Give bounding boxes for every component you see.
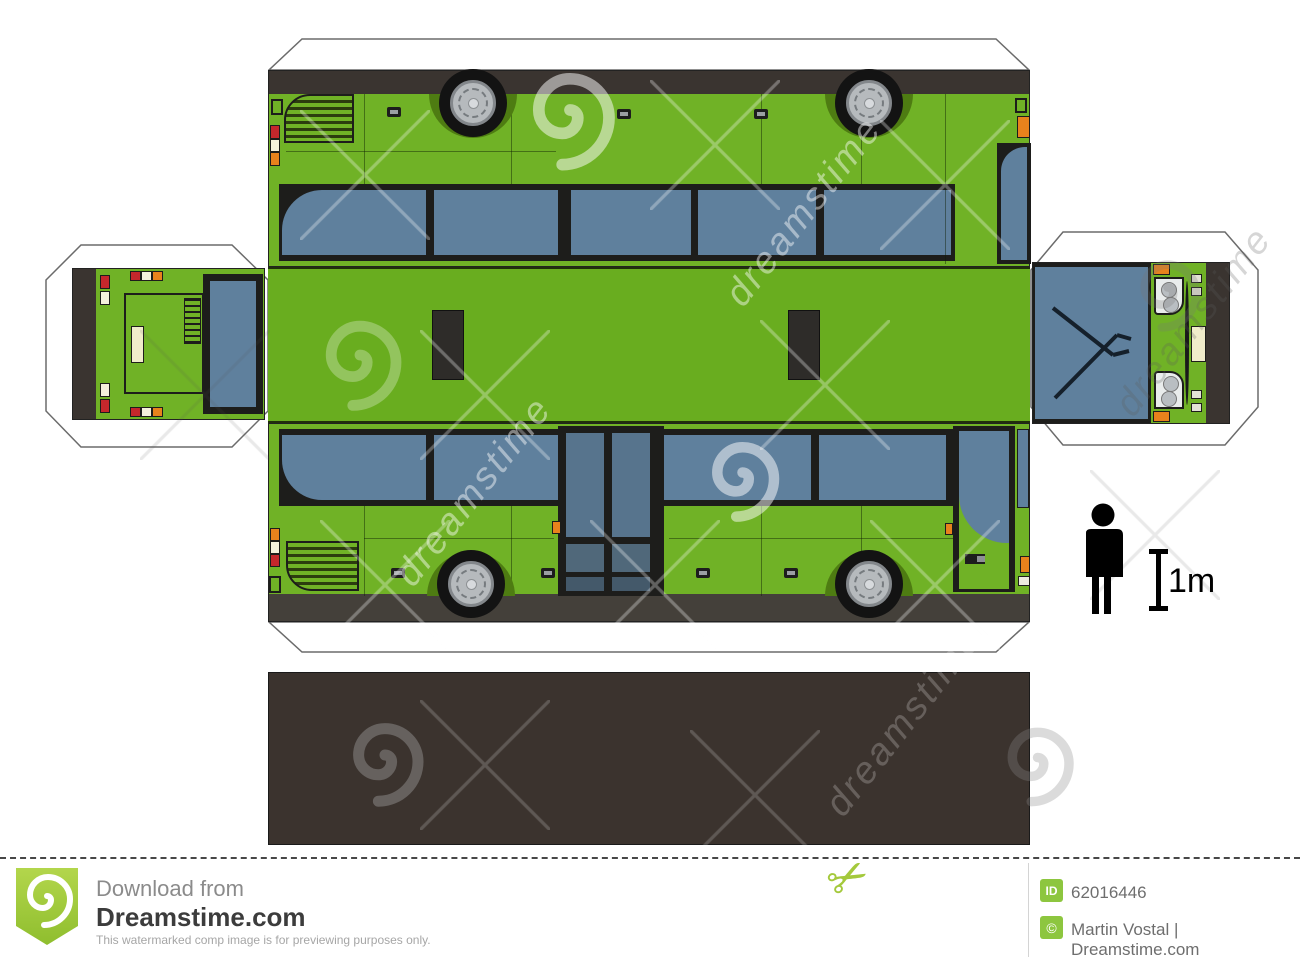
tail-light-red xyxy=(270,554,280,567)
scale-bar xyxy=(1156,549,1161,611)
door-handle xyxy=(977,556,985,562)
scissors-icon: ✂ xyxy=(817,844,879,912)
headlight xyxy=(1161,282,1177,298)
rear-lamp-outline xyxy=(269,576,281,593)
wiper-icon xyxy=(1033,263,1151,423)
side-marker-light xyxy=(387,107,401,117)
wheel xyxy=(835,69,903,137)
tail-cluster-white xyxy=(141,271,152,281)
door-panel xyxy=(612,544,650,572)
image-id: 62016446 xyxy=(1071,883,1147,903)
front-vent xyxy=(1191,390,1202,399)
front-indicator-orange xyxy=(1020,556,1030,573)
dreamstime-logo xyxy=(14,866,80,948)
panel-seam xyxy=(761,506,762,596)
side-marker-light xyxy=(541,568,555,578)
rear-window-frame xyxy=(203,274,263,414)
license-plate xyxy=(131,326,144,363)
windshield-frame xyxy=(1033,263,1151,423)
scale-bar xyxy=(1149,606,1168,611)
front-lamp-outline xyxy=(1015,98,1027,113)
side-marker-light xyxy=(617,109,631,119)
stock-image-preview: dreamstime dreamstime dreamstime dreamst… xyxy=(0,0,1300,957)
cut-line xyxy=(0,857,1300,859)
front-door xyxy=(953,426,1015,592)
wheel xyxy=(437,550,505,618)
bus-skirt-trim xyxy=(269,71,1029,94)
headlight xyxy=(1161,391,1177,407)
tail-cluster-orange xyxy=(152,271,163,281)
credit-text: Martin Vostal | Dreamstime.com xyxy=(1071,920,1300,957)
front-indicator-orange xyxy=(1153,411,1170,422)
panel-seam xyxy=(761,94,762,184)
roof-hatch xyxy=(788,310,820,380)
tail-light-white xyxy=(100,383,110,397)
bus-front-view xyxy=(1032,262,1230,424)
bus-side-top-panel xyxy=(268,70,1030,267)
headlight xyxy=(1163,297,1179,313)
headlight-cluster xyxy=(1154,277,1184,315)
engine-grille xyxy=(284,94,354,143)
side-marker-light xyxy=(391,568,405,578)
id-badge: ID xyxy=(1040,879,1063,902)
tail-light-red xyxy=(100,275,110,289)
bus-roof-panel xyxy=(268,267,1030,423)
disclaimer-text: This watermarked comp image is for previ… xyxy=(96,933,431,947)
door-panel xyxy=(566,544,604,572)
tail-cluster-red xyxy=(130,407,141,417)
bus-window xyxy=(282,190,426,255)
panel-seam xyxy=(286,151,556,152)
front-lamp-white xyxy=(1018,576,1030,586)
wheel xyxy=(835,550,903,618)
door-panel xyxy=(566,577,604,591)
side-marker-light xyxy=(696,568,710,578)
headlight xyxy=(1163,376,1179,392)
front-vent xyxy=(1191,274,1202,283)
panel-seam xyxy=(669,538,953,539)
bus-side-bottom-panel xyxy=(268,423,1030,622)
bus-rear-view xyxy=(72,268,265,420)
front-indicator-orange xyxy=(1017,116,1030,138)
bus-window xyxy=(664,435,811,500)
door-panel xyxy=(612,577,650,591)
front-bumper xyxy=(1206,263,1229,423)
windshield-glass xyxy=(1001,147,1027,260)
glue-flap-top xyxy=(268,38,1030,71)
front-vent xyxy=(1191,287,1202,296)
tail-light-red xyxy=(100,399,110,413)
side-marker-light xyxy=(784,568,798,578)
tail-cluster-orange xyxy=(152,407,163,417)
panel-seam xyxy=(364,538,554,539)
person-icon xyxy=(1083,503,1129,615)
copyright-badge: © xyxy=(1040,916,1063,939)
bus-floor-panel xyxy=(268,672,1030,845)
front-corner-window xyxy=(1017,429,1029,508)
front-indicator-orange xyxy=(1153,264,1170,275)
tail-light-orange xyxy=(270,528,280,541)
bus-window xyxy=(282,435,426,500)
tail-light-red xyxy=(270,125,280,139)
rear-lamp-outline xyxy=(271,99,283,115)
panel-seam xyxy=(945,94,946,264)
panel-seam xyxy=(364,506,365,596)
door-glass xyxy=(612,433,650,537)
windshield-frame xyxy=(997,143,1031,264)
rear-bumper xyxy=(73,269,96,419)
tail-light-white xyxy=(100,291,110,305)
window-band xyxy=(279,184,955,261)
roof-hatch xyxy=(432,310,464,380)
bus-window xyxy=(434,190,558,255)
front-contour-line xyxy=(1185,281,1189,405)
scale-label: 1m xyxy=(1168,562,1215,601)
tail-light-white xyxy=(270,139,280,152)
rear-vent-grille xyxy=(184,298,201,344)
front-vent xyxy=(1191,403,1202,412)
bus-window xyxy=(819,435,946,500)
side-marker-light xyxy=(754,109,768,119)
site-name: Dreamstime.com xyxy=(96,902,306,933)
rear-window-glass xyxy=(210,281,256,407)
footer-separator xyxy=(1028,863,1029,957)
license-plate xyxy=(1191,326,1206,362)
wheel xyxy=(439,69,507,137)
tail-cluster-white xyxy=(141,407,152,417)
door-glass xyxy=(566,433,604,537)
bus-skirt-trim xyxy=(269,594,1029,621)
bus-window xyxy=(571,190,691,255)
bus-window xyxy=(434,435,558,500)
bus-window xyxy=(698,190,816,255)
door-indicator-orange xyxy=(552,521,561,534)
tail-cluster-red xyxy=(130,271,141,281)
tail-light-orange xyxy=(270,152,280,166)
bus-window xyxy=(824,190,951,255)
headlight-cluster xyxy=(1154,371,1184,409)
panel-seam xyxy=(364,94,365,184)
tail-light-white xyxy=(270,541,280,554)
download-heading: Download from xyxy=(96,876,244,902)
engine-grille xyxy=(286,541,359,591)
door-indicator-orange xyxy=(945,523,953,535)
glue-flap-bottom xyxy=(268,621,1030,654)
middle-door xyxy=(558,426,664,596)
